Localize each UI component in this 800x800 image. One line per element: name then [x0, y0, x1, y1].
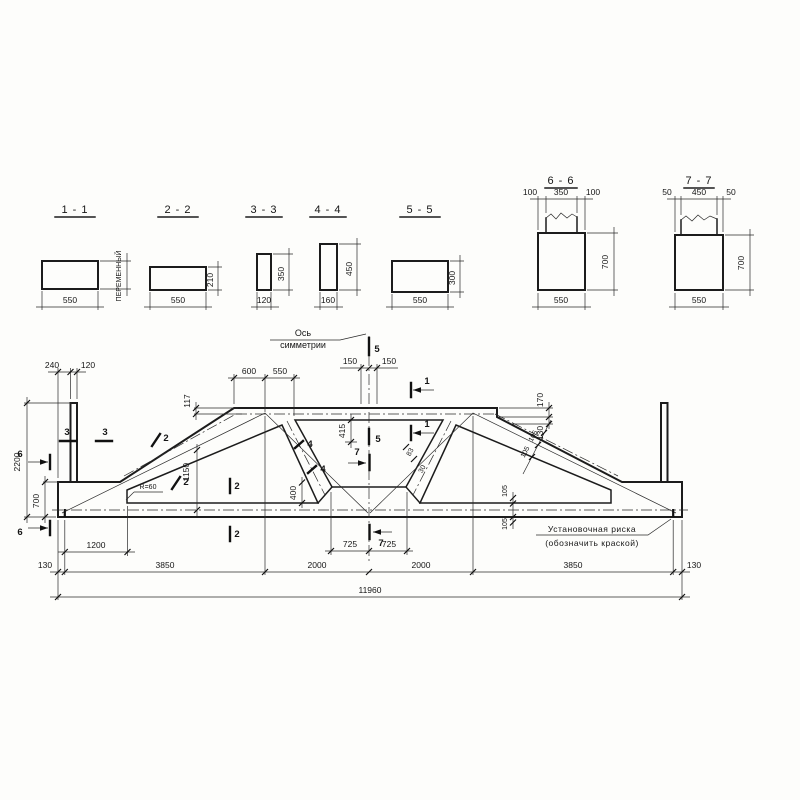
section-title: 2 - 2	[164, 204, 191, 216]
dim-130-right: 130	[687, 560, 701, 570]
section-5-5: 5 - 5 550 300	[386, 204, 464, 310]
section-3-3: 3 - 3 120 350	[246, 204, 293, 310]
dim-width: 550	[63, 295, 77, 305]
mark-6-top: 6	[17, 449, 22, 460]
dim-width: 550	[413, 295, 427, 305]
note-line1: Установочная риска	[548, 524, 636, 534]
section-outline	[392, 261, 448, 292]
section-outline	[320, 244, 337, 290]
dim-lines	[667, 196, 754, 310]
mark-3-right: 3	[102, 427, 107, 438]
section-6-6: 6 - 6 100 350 100 700 550	[523, 175, 618, 310]
mark-1-mid: 1	[424, 419, 430, 430]
dim-117: 117	[182, 394, 192, 408]
mark-4-top: 4	[307, 439, 313, 450]
section-1-1: 1 - 1 550 ПЕРЕМЕННЫЙ	[36, 204, 131, 310]
dim-2000-left: 2000	[308, 560, 327, 570]
column-stub	[681, 219, 717, 235]
dim-top-right: 50	[726, 187, 736, 197]
dim-height-variable: ПЕРЕМЕННЫЙ	[114, 251, 123, 302]
dim-400: 400	[288, 486, 298, 500]
section-2-2: 2 - 2 550 210	[144, 204, 222, 310]
mark-5-top: 5	[374, 344, 380, 355]
mark-6-bottom: 6	[17, 527, 22, 538]
section-arrow-shafts	[28, 390, 434, 532]
section-4-4: 4 - 4 160 450	[310, 204, 361, 310]
mark-7-top: 7	[354, 447, 359, 458]
section-title: 5 - 5	[406, 204, 433, 216]
mark-2-slope-bottom: 2	[183, 477, 188, 488]
break-line	[681, 215, 717, 221]
break-line	[546, 213, 577, 219]
section-title: 3 - 3	[250, 204, 277, 216]
section-7-7: 7 - 7 50 450 50 700 550	[662, 175, 754, 310]
dim-105-d: 105	[502, 518, 509, 530]
mark-3-left: 3	[64, 427, 69, 438]
column-stub	[546, 217, 577, 233]
axis-label-line1: Ось	[295, 328, 312, 338]
dim-width: 160	[321, 295, 335, 305]
dim-3850-left: 3850	[156, 560, 175, 570]
note-line2: (обозначить краской)	[545, 538, 639, 548]
dim-105-c: 105	[502, 485, 509, 497]
dim-130-left: 130	[38, 560, 52, 570]
dim-415: 415	[337, 424, 347, 438]
section-outline	[42, 261, 98, 289]
blueprint-sheet: 1 - 1 550 ПЕРЕМЕННЫЙ 2 - 2 550 210 3 - 3…	[0, 0, 800, 800]
dim-170: 170	[535, 393, 545, 407]
axis-label-line2: симметрии	[280, 340, 326, 350]
dim-top-right: 100	[586, 187, 600, 197]
mark-2-mid-bottom: 2	[234, 529, 239, 540]
dim-height: 700	[600, 255, 610, 269]
dim-83: 83	[406, 447, 416, 457]
dim-width: 120	[257, 295, 271, 305]
mark-4-bottom: 4	[320, 464, 326, 475]
mark-7-bottom: 7	[378, 538, 383, 549]
section-title: 1 - 1	[61, 204, 88, 216]
mark-1-top: 1	[424, 376, 430, 387]
section-title: 4 - 4	[314, 204, 341, 216]
dim-height: 700	[736, 256, 746, 270]
dim-width: 550	[171, 295, 185, 305]
dim-105-a: 105	[520, 445, 532, 459]
section-outline	[257, 254, 271, 290]
dim-width: 550	[692, 295, 706, 305]
radius-label: R=60	[140, 484, 157, 491]
dim-600: 600	[242, 366, 256, 376]
section-title: 6 - 6	[547, 175, 574, 187]
dim-height: 300	[447, 271, 457, 285]
dim-700: 700	[31, 494, 41, 508]
dim-1200: 1200	[87, 540, 106, 550]
dim-lines	[530, 196, 618, 310]
dim-725-left: 725	[343, 539, 357, 549]
dim-150-right: 150	[382, 356, 396, 366]
mark-2-mid-top: 2	[234, 481, 239, 492]
section-cut-bars	[50, 338, 411, 541]
mark-2-slope-top: 2	[163, 433, 168, 444]
mark-5-mid: 5	[375, 434, 381, 445]
dim-top-mid: 350	[554, 187, 568, 197]
dim-top-left: 100	[523, 187, 537, 197]
dim-top-left: 50	[662, 187, 672, 197]
dim-3850-right: 3850	[564, 560, 583, 570]
dim-240: 240	[45, 360, 59, 370]
radius-leader	[126, 492, 163, 500]
dim-width: 550	[554, 295, 568, 305]
dim-120: 120	[81, 360, 95, 370]
dim-725-right: 725	[382, 539, 396, 549]
truss-drawing: 1 - 1 550 ПЕРЕМЕННЫЙ 2 - 2 550 210 3 - 3…	[0, 0, 800, 800]
section-title: 7 - 7	[685, 175, 712, 187]
dim-total-11960: 11960	[358, 585, 381, 595]
section-outline	[538, 233, 585, 290]
dim-150-left: 150	[343, 356, 357, 366]
section-outline	[675, 235, 723, 290]
elevation-view: Ось симметрии 240 120 600 550 150 150 11…	[12, 328, 701, 600]
section-outline	[150, 267, 206, 290]
dim-2000-right: 2000	[412, 560, 431, 570]
dim-height: 210	[205, 273, 215, 287]
dim-height: 350	[276, 267, 286, 281]
dim-550: 550	[273, 366, 287, 376]
dim-height: 450	[344, 262, 354, 276]
dim-top-mid: 450	[692, 187, 706, 197]
